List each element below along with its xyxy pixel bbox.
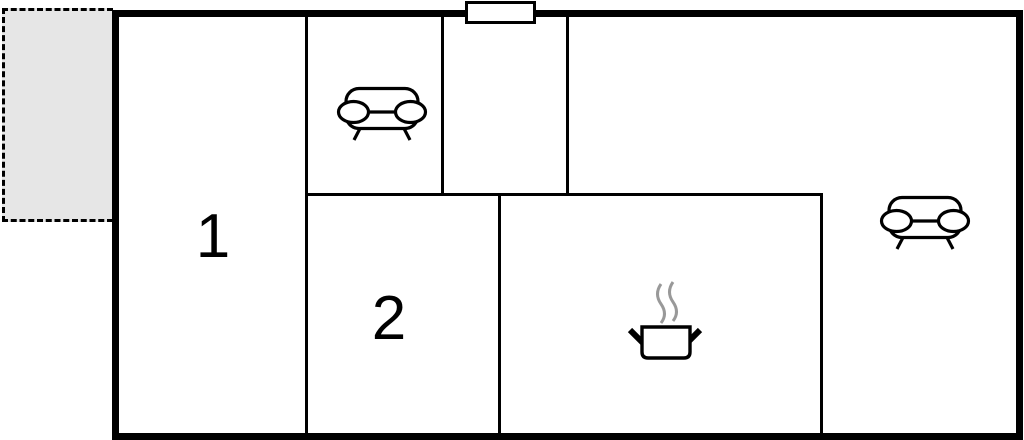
floor-plan: 1 2 bbox=[0, 0, 1024, 440]
window-icon bbox=[465, 1, 536, 24]
interior-wall bbox=[820, 196, 823, 433]
room-1-label: 1 bbox=[163, 206, 263, 268]
interior-wall bbox=[305, 17, 308, 433]
interior-wall bbox=[498, 196, 501, 433]
sofa-icon bbox=[334, 85, 429, 142]
cooking-pot-icon bbox=[622, 281, 708, 361]
terrace-area bbox=[2, 8, 113, 222]
interior-wall bbox=[566, 17, 569, 194]
sofa-icon bbox=[877, 194, 972, 251]
room-2-label: 2 bbox=[339, 288, 439, 350]
interior-wall bbox=[441, 17, 444, 194]
interior-wall bbox=[305, 193, 823, 196]
